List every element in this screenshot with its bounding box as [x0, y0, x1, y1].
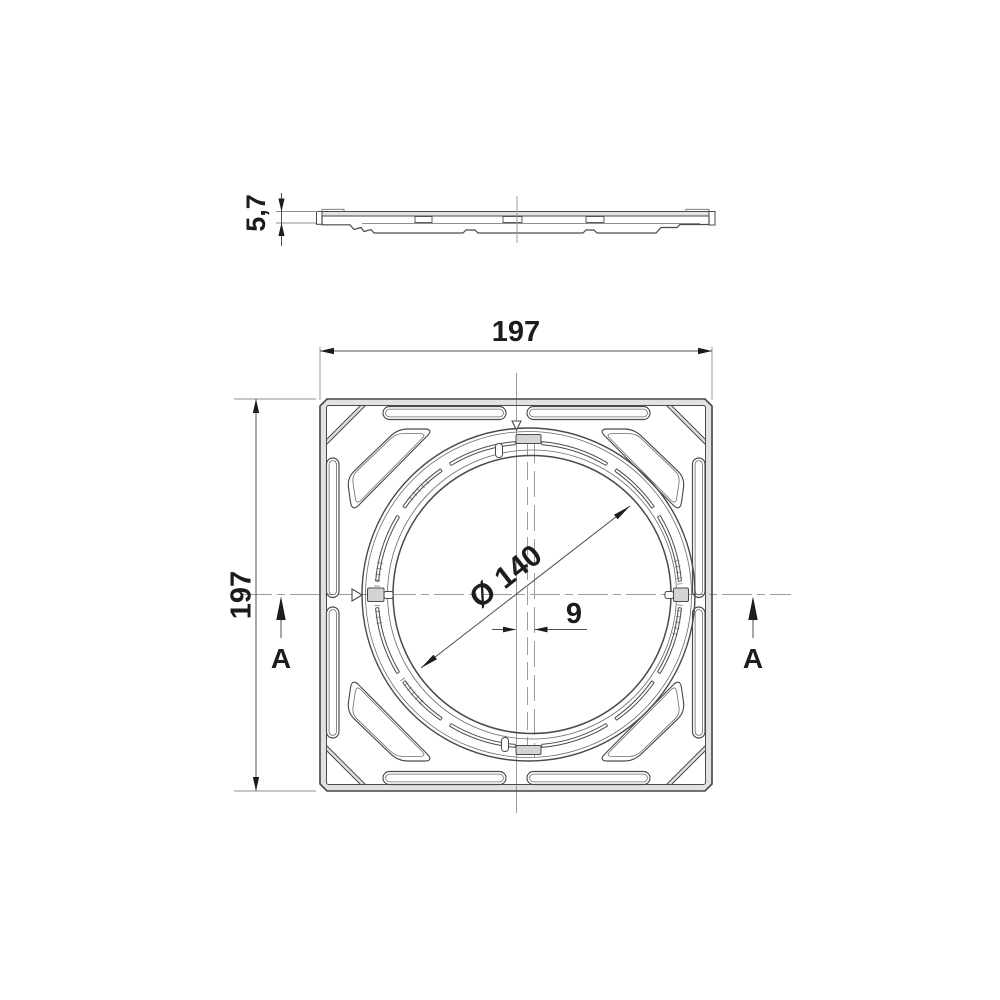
ring-tab-top — [516, 435, 541, 444]
ring-tab-bottom — [516, 746, 541, 755]
ring-latch-right-stub — [665, 592, 674, 599]
technical-drawing-sheet: 5,7 — [0, 0, 1000, 1000]
side-clip — [586, 217, 604, 223]
thickness-label: 5,7 — [241, 194, 271, 232]
section-arrow — [748, 597, 757, 621]
ring-pin-bottom — [502, 738, 509, 752]
dim-arrow — [320, 348, 334, 354]
section-label-right: A — [743, 643, 763, 674]
ring-latch-left — [368, 588, 385, 602]
knurl-tick — [375, 580, 381, 581]
width-label: 197 — [492, 316, 540, 348]
dim-arrow — [278, 199, 284, 212]
height-label: 197 — [226, 571, 258, 619]
dimension-thickness: 5,7 — [241, 193, 318, 246]
dim-arrow — [253, 399, 259, 413]
section-marker-left: A — [271, 597, 291, 675]
plan-view — [242, 373, 791, 813]
dim-arrow — [253, 777, 259, 791]
side-clip — [415, 217, 432, 223]
side-right-end-cap — [709, 212, 715, 226]
section-marker-right: A — [743, 597, 763, 675]
ring-latch-left-stub — [384, 592, 393, 599]
section-label-left: A — [271, 643, 291, 674]
dim-arrow — [278, 223, 284, 236]
ring-latch-right — [674, 588, 689, 602]
side-view — [317, 196, 716, 243]
offset-label: 9 — [566, 598, 582, 630]
section-arrow — [276, 597, 285, 621]
side-clip — [503, 217, 522, 223]
drain-frame-drawing: 5,7 — [0, 0, 1000, 1000]
ring-pin-top — [496, 444, 503, 458]
side-left-end-cap — [317, 212, 323, 225]
dim-arrow — [698, 348, 712, 354]
